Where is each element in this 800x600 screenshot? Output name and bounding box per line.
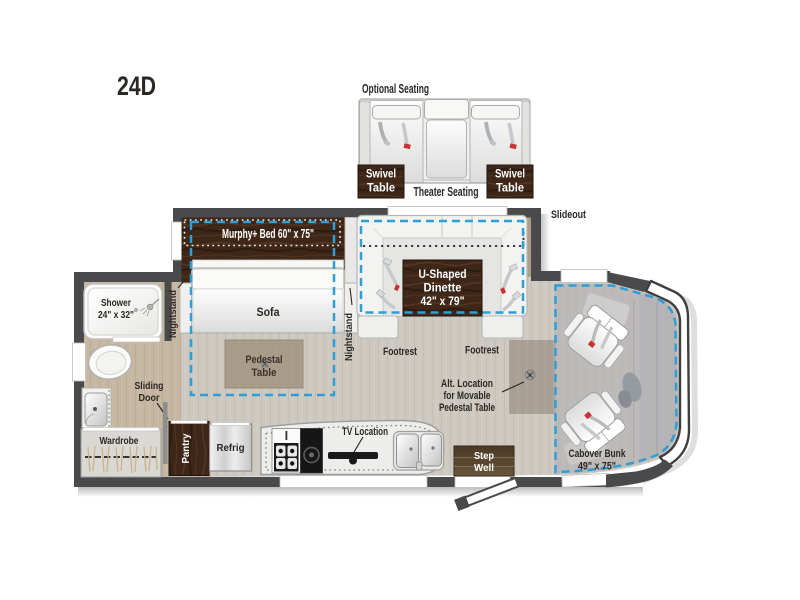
svg-text:Swivel: Swivel [366, 167, 396, 181]
svg-text:Footrest: Footrest [465, 345, 499, 357]
svg-text:Door: Door [139, 392, 160, 404]
svg-text:Pantry: Pantry [180, 433, 192, 463]
svg-text:Wardrobe: Wardrobe [100, 435, 139, 447]
svg-text:Shower: Shower [101, 297, 131, 309]
svg-text:Cabover Bunk: Cabover Bunk [569, 448, 627, 460]
svg-text:Sofa: Sofa [257, 307, 281, 319]
svg-text:Dinette: Dinette [424, 281, 462, 295]
svg-text:Slideout: Slideout [551, 209, 586, 221]
svg-text:Refrig: Refrig [217, 442, 245, 454]
svg-text:Optional Seating: Optional Seating [362, 81, 429, 96]
svg-text:Pedestal Table: Pedestal Table [439, 402, 495, 414]
svg-text:24D: 24D [117, 71, 156, 101]
svg-text:42" x 79": 42" x 79" [421, 294, 465, 308]
svg-text:U-Shaped: U-Shaped [419, 267, 467, 281]
svg-text:49" x 75": 49" x 75" [578, 461, 616, 473]
svg-text:Theater Seating: Theater Seating [414, 184, 479, 199]
svg-text:Table: Table [367, 181, 395, 195]
svg-text:Murphy+ Bed 60" x 75": Murphy+ Bed 60" x 75" [222, 227, 314, 241]
svg-text:TV Location: TV Location [342, 426, 388, 438]
svg-text:Alt. Location: Alt. Location [441, 378, 493, 390]
svg-text:for Movable: for Movable [444, 390, 491, 402]
svg-text:Table: Table [252, 367, 277, 379]
svg-text:Nightstand: Nightstand [344, 313, 355, 361]
svg-text:Nightstand: Nightstand [168, 290, 179, 338]
svg-text:Well: Well [474, 462, 494, 474]
svg-text:Sliding: Sliding [135, 380, 164, 392]
svg-text:Swivel: Swivel [495, 167, 525, 181]
svg-text:Step: Step [474, 450, 494, 462]
svg-text:24" x 32": 24" x 32" [98, 309, 134, 321]
svg-text:Footrest: Footrest [383, 346, 417, 358]
svg-text:Table: Table [496, 181, 524, 195]
svg-text:Pedestal: Pedestal [246, 354, 283, 366]
